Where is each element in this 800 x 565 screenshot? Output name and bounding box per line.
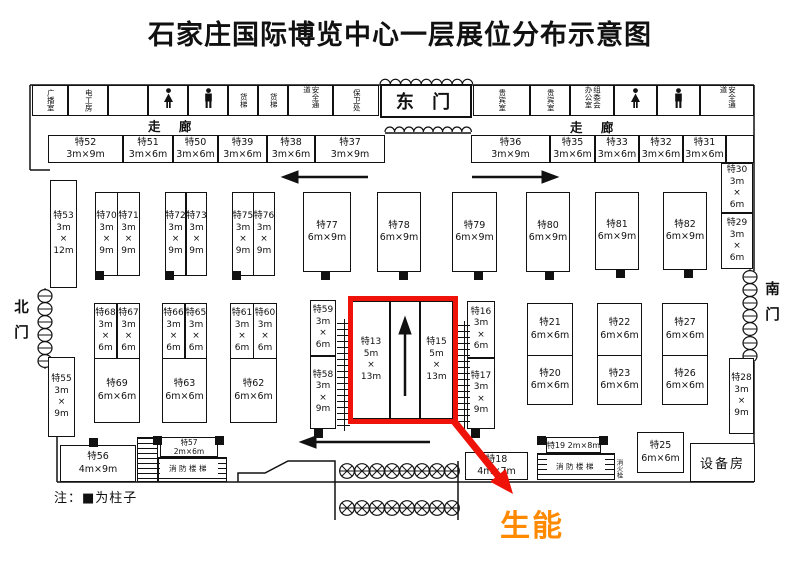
room-wc-male (657, 85, 700, 116)
booth-特66: 特663m×6m (162, 303, 185, 359)
pillar (95, 271, 104, 280)
pillar (165, 271, 174, 280)
booth-特63: 特636m×6m (162, 358, 207, 423)
room-安全通道: 安全通道 (700, 85, 754, 116)
booth-特79: 特796m×9m (452, 192, 497, 272)
pillar (399, 271, 408, 280)
booth-特33: 特333m×6m (595, 135, 639, 163)
east-gate: 东 门 (380, 84, 472, 118)
booth-特73: 特733m×9m (186, 192, 207, 276)
booth-特28: 特283m×9m (729, 358, 754, 434)
booth-特57: 特572m×6m (160, 437, 218, 457)
pillar (471, 429, 480, 438)
booth-特59: 特593m×6m (310, 300, 336, 356)
booth-特27: 特276m×6m (662, 303, 708, 356)
booth-特25: 特256m×6m (637, 432, 684, 473)
booth-特71: 特713m×9m (117, 192, 140, 276)
booth-特31: 特313m×6m (683, 135, 726, 163)
wc-female-icon (629, 88, 642, 113)
corridor-label-left: 走 廊 (148, 116, 198, 135)
pillar (545, 271, 554, 280)
wc-male-icon (202, 88, 215, 113)
pillar (314, 429, 323, 438)
booth-特69: 特696m×6m (94, 358, 140, 423)
booth-特36: 特363m×9m (471, 135, 550, 163)
booth-特60: 特603m×6m (253, 303, 277, 359)
booth-特55: 特553m×9m (48, 357, 75, 437)
booth-特70: 特703m×9m (95, 192, 118, 276)
booth-特82: 特826m×9m (663, 192, 707, 270)
wc-female-icon (162, 88, 175, 113)
room-贵宾室: 贵宾室 (473, 85, 530, 116)
room-wc-male (188, 85, 228, 116)
booth-特16: 特163m×6m (467, 301, 495, 358)
booth-特26: 特266m×6m (662, 355, 708, 405)
room-wc-female (614, 85, 657, 116)
booth-特51: 特513m×6m (123, 135, 173, 163)
booth-特21: 特216m×6m (527, 303, 573, 356)
floorplan-canvas: 石家庄国际博览中心一层展位分布示意图 特523m×9m特513m×6m特503m… (0, 0, 800, 565)
booth-特58: 特583m×9m (310, 356, 336, 429)
pillar (616, 269, 625, 278)
booth-特17: 特173m×9m (467, 358, 495, 429)
pillar (599, 436, 608, 445)
room-安全通道: 安全通道 (288, 85, 333, 116)
room-wc-female (148, 85, 188, 116)
highlight-box (348, 296, 458, 424)
booth-特39: 特393m×6m (218, 135, 267, 163)
south-gate-label: 南门 (761, 281, 782, 332)
booth-特23: 特236m×6m (597, 355, 642, 405)
booth-特56: 特564m×9m (60, 445, 136, 482)
booth-特72: 特723m×9m (165, 192, 186, 276)
booth-特22: 特226m×6m (597, 303, 642, 356)
booth-特61: 特613m×6m (230, 303, 254, 359)
pillar (537, 436, 546, 445)
room-货梯: 货梯 (258, 85, 288, 116)
booth-特68: 特683m×6m (94, 303, 117, 359)
booth-特81: 特816m×9m (595, 192, 639, 270)
room-贵宾室: 贵宾室 (530, 85, 570, 116)
booth-特38: 特383m×6m (267, 135, 315, 163)
north-gate-label: 北门 (10, 299, 31, 350)
corridor-label-right: 走 廊 (570, 117, 620, 136)
wc-male-icon (672, 88, 685, 113)
booth-特30: 特303m×6m (721, 163, 753, 213)
pillar (89, 438, 98, 447)
booth-特53: 特533m×12m (50, 180, 77, 288)
pillar (321, 271, 330, 280)
booth-特19: 特19 2m×8m (546, 437, 601, 453)
pillar (684, 269, 693, 278)
booth-特62: 特626m×6m (230, 358, 277, 423)
empty-box (726, 135, 754, 163)
pillar (474, 271, 483, 280)
booth-特52: 特523m×9m (48, 135, 123, 163)
booth-特20: 特206m×6m (527, 355, 573, 405)
booth-特75: 特753m×9m (232, 192, 254, 276)
room-广播室: 广播室 (32, 85, 68, 116)
pillar (153, 436, 162, 445)
booth-特78: 特786m×9m (377, 192, 421, 272)
room-保卫处: 保卫处 (333, 85, 379, 116)
booth-特35: 特353m×6m (550, 135, 595, 163)
room-电工房: 电工房 (68, 85, 108, 116)
booth-特50: 特503m×6m (173, 135, 218, 163)
booth-特37: 特373m×9m (315, 135, 385, 163)
booth-特18: 特184m×7m (465, 452, 528, 480)
callout-text: 生能 (500, 501, 564, 545)
legend-note: 注：■为柱子 (54, 487, 137, 506)
room-货梯: 货梯 (228, 85, 258, 116)
fire-stairs-label-right: 消防楼梯 (547, 459, 605, 473)
fire-stairs-label-left: 消防楼梯 (160, 462, 218, 475)
escalator-right (457, 325, 470, 425)
equipment-room: 设备房 (690, 443, 755, 482)
booth-特65: 特653m×6m (185, 303, 207, 359)
booth-特77: 特776m×9m (303, 192, 351, 272)
pillar (232, 271, 241, 280)
empty-room (108, 85, 148, 116)
room-组委会办公室: 组委会办公室 (570, 85, 614, 116)
booth-特67: 特673m×6m (117, 303, 140, 359)
booth-特76: 特763m×9m (253, 192, 275, 276)
booth-特29: 特293m×6m (721, 213, 753, 269)
pillar (215, 436, 224, 445)
fire-hydrant-label: 消火栓 (615, 459, 622, 479)
booth-特80: 特806m×9m (526, 192, 570, 272)
booth-特32: 特323m×6m (639, 135, 683, 163)
